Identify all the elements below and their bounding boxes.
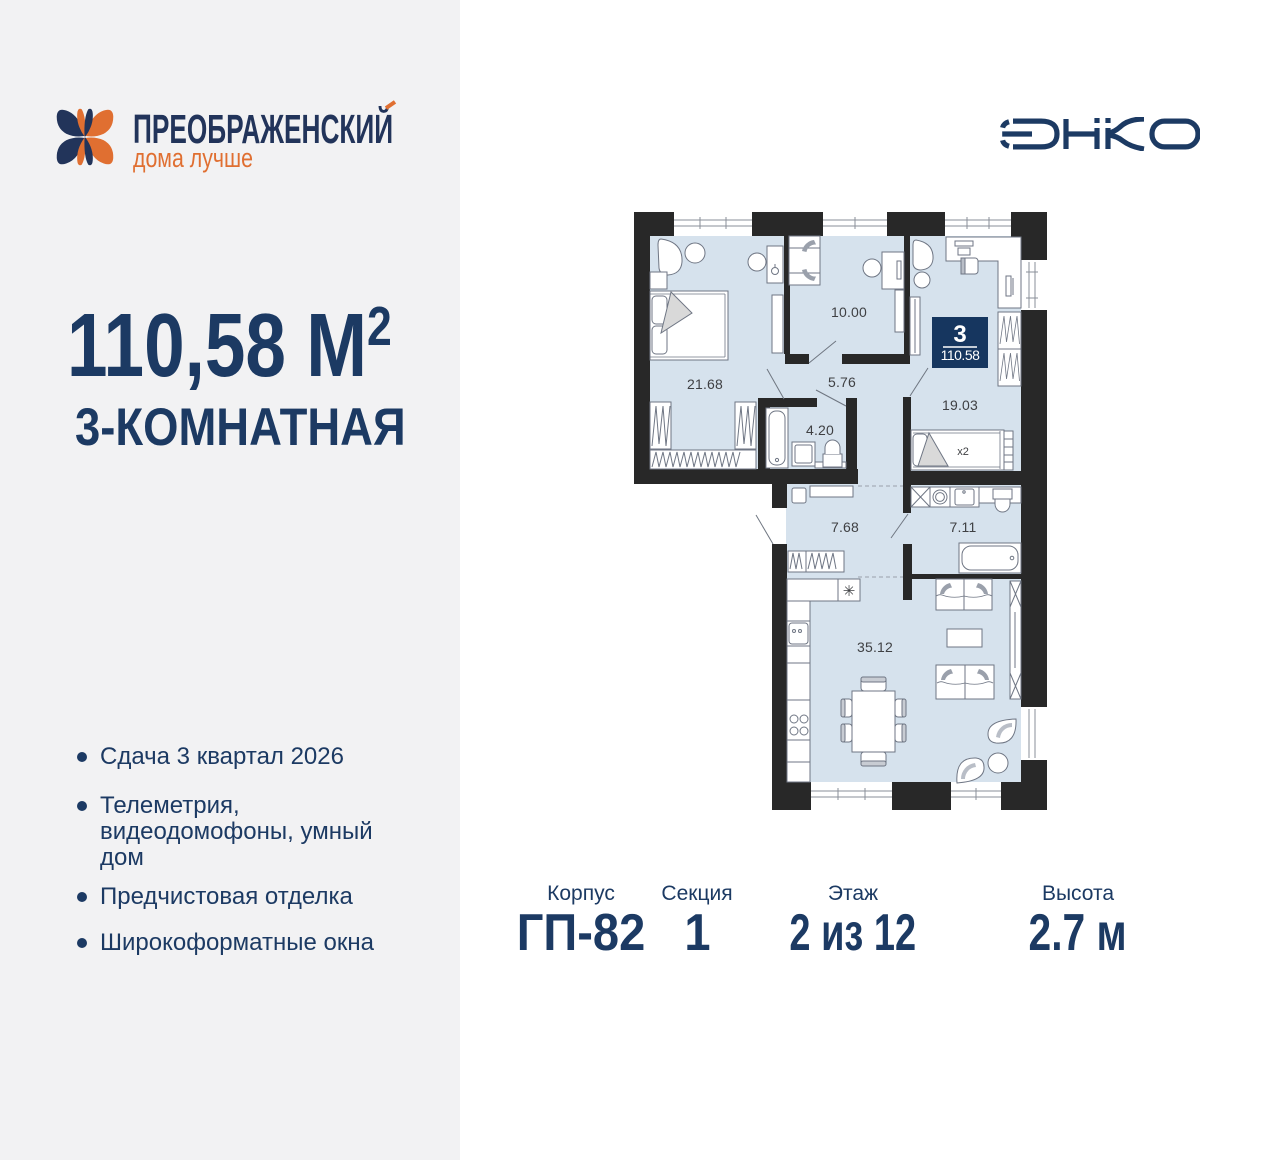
svg-text:x2: x2 (957, 446, 969, 458)
svg-text:5.76: 5.76 (828, 374, 856, 390)
svg-text:110.58: 110.58 (941, 347, 980, 363)
svg-text:7.11: 7.11 (949, 519, 976, 535)
svg-text:3: 3 (953, 321, 966, 348)
svg-text:7.68: 7.68 (831, 519, 859, 535)
svg-text:4.20: 4.20 (806, 422, 834, 438)
svg-text:21.68: 21.68 (687, 376, 723, 392)
svg-text:35.12: 35.12 (857, 639, 893, 655)
svg-text:19.03: 19.03 (942, 397, 978, 413)
svg-text:✳: ✳ (843, 583, 856, 600)
svg-text:10.00: 10.00 (831, 304, 867, 320)
